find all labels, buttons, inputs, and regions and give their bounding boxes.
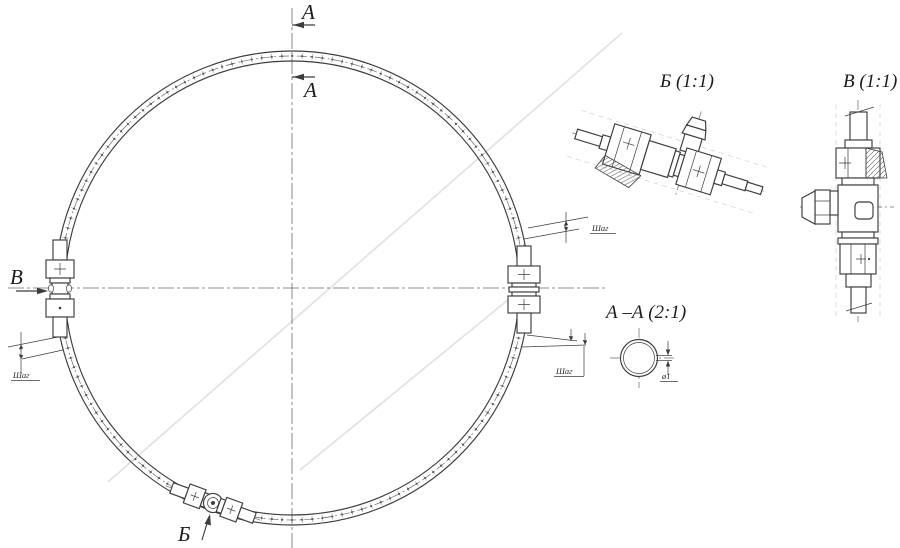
detail-b: Б (1:1) <box>562 71 781 226</box>
view-b-label: Б <box>177 522 190 546</box>
section-a-upper-label: А <box>300 0 315 24</box>
engineering-drawing: Шаг Шаг Шаг <box>0 0 900 548</box>
detail-v: В (1:1) <box>800 71 897 322</box>
section-aa-title: А –А (2:1) <box>604 302 686 323</box>
view-v-label: В <box>10 265 23 289</box>
hole-diameter-label: ø1 <box>661 371 671 381</box>
pitch-label-upper-right: Шаг <box>591 223 609 233</box>
detail-b-title: Б (1:1) <box>659 71 714 92</box>
pitch-callout-lower-right: Шаг <box>522 329 587 377</box>
pitch-callout-upper-right: Шаг <box>524 212 616 243</box>
section-aa: А –А (2:1) ø1 <box>604 302 686 388</box>
pitch-label-left: Шаг <box>12 370 30 380</box>
fitting-right <box>508 244 540 334</box>
detail-v-title: В (1:1) <box>843 71 897 92</box>
pitch-label-lower-right: Шаг <box>555 366 573 376</box>
pitch-callout-left: Шаг <box>8 332 63 381</box>
section-a-lower-label: А <box>302 78 317 102</box>
view-marker-v: В <box>10 265 48 294</box>
fitting-left <box>46 238 74 338</box>
scan-artifacts <box>108 33 622 482</box>
drawing-sheet: Шаг Шаг Шаг <box>0 0 900 548</box>
view-marker-b: Б <box>177 514 211 546</box>
